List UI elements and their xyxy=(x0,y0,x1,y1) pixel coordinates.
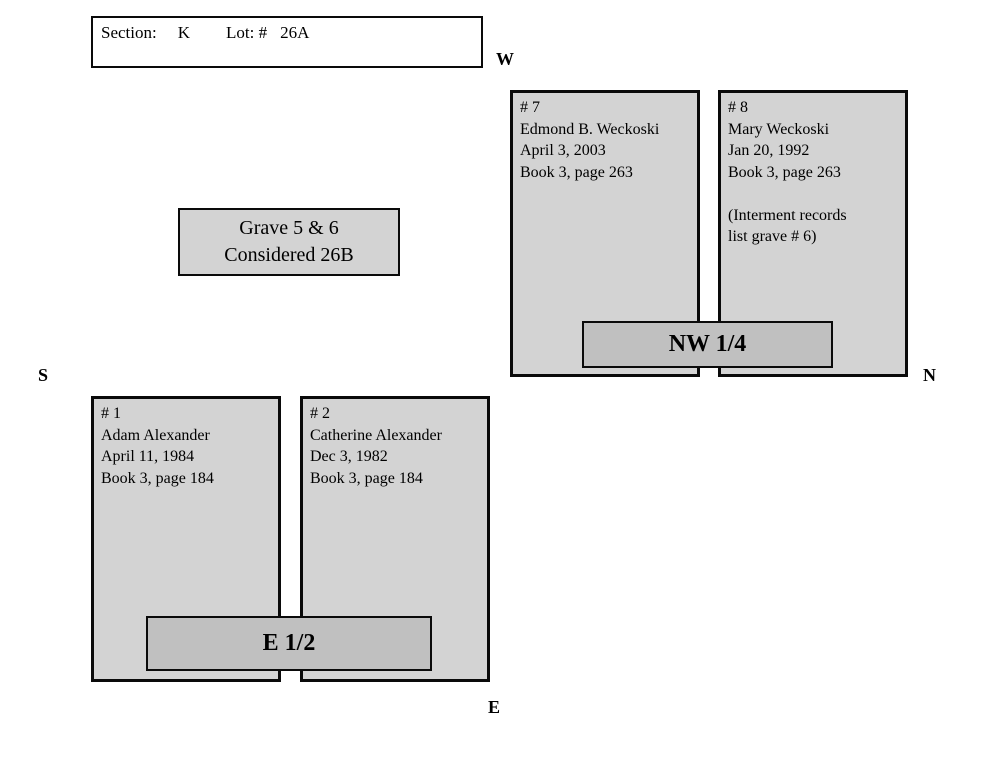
compass-east-label: E xyxy=(488,698,500,716)
section-value: K xyxy=(178,23,190,43)
grave-5-6-note-box: Grave 5 & 6 Considered 26B xyxy=(178,208,400,276)
grave-8-book-page: Book 3, page 263 xyxy=(728,162,898,184)
note-line-1: Grave 5 & 6 xyxy=(180,215,398,242)
nw-quarter-label-box: NW 1/4 xyxy=(582,321,833,368)
grave-7-name: Edmond B. Weckoski xyxy=(520,119,690,141)
grave-8-interment-note-2: list grave # 6) xyxy=(728,226,898,248)
compass-north-label: N xyxy=(923,366,936,384)
e-half-label-box: E 1/2 xyxy=(146,616,432,671)
grave-8-spacer xyxy=(728,183,898,205)
section-label: Section: xyxy=(101,23,157,43)
compass-west-label: W xyxy=(496,50,514,68)
grave-7-book-page: Book 3, page 263 xyxy=(520,162,690,184)
grave-2-number: # 2 xyxy=(310,403,480,425)
grave-7-number: # 7 xyxy=(520,97,690,119)
grave-1-name: Adam Alexander xyxy=(101,425,271,447)
grave-1-date: April 11, 1984 xyxy=(101,446,271,468)
grave-7-date: April 3, 2003 xyxy=(520,140,690,162)
grave-8-date: Jan 20, 1992 xyxy=(728,140,898,162)
cemetery-lot-diagram: Section:KLot: #26A W N S E Grave 5 & 6 C… xyxy=(0,0,1000,773)
grave-8-name: Mary Weckoski xyxy=(728,119,898,141)
grave-2-book-page: Book 3, page 184 xyxy=(310,468,480,490)
grave-2-name: Catherine Alexander xyxy=(310,425,480,447)
grave-1-book-page: Book 3, page 184 xyxy=(101,468,271,490)
grave-8-number: # 8 xyxy=(728,97,898,119)
compass-south-label: S xyxy=(38,366,48,384)
lot-value: 26A xyxy=(280,23,309,43)
lot-label: Lot: # xyxy=(226,23,267,43)
grave-2-date: Dec 3, 1982 xyxy=(310,446,480,468)
note-line-2: Considered 26B xyxy=(180,242,398,269)
grave-8-interment-note-1: (Interment records xyxy=(728,205,898,227)
section-lot-box: Section:KLot: #26A xyxy=(91,16,483,68)
grave-1-number: # 1 xyxy=(101,403,271,425)
